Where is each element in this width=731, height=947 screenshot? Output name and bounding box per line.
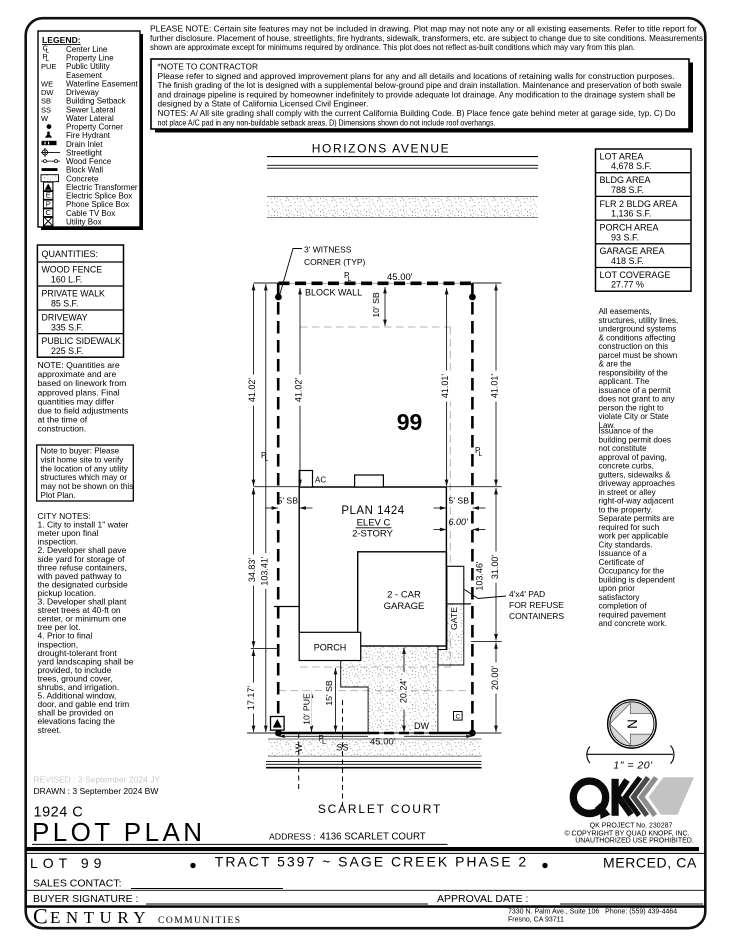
svg-text:ADDRESS :: ADDRESS : — [269, 832, 316, 842]
svg-text:AC: AC — [315, 476, 326, 485]
svg-text:41.02': 41.02' — [247, 378, 257, 403]
svg-text:QK PROJECT No. 230287: QK PROJECT No. 230287 — [590, 823, 673, 830]
svg-text:Issuance of the: Issuance of the — [599, 427, 654, 436]
svg-text:CORNER (TYP): CORNER (TYP) — [304, 257, 366, 267]
svg-text:FLR 2 BLDG AREA: FLR 2 BLDG AREA — [600, 199, 678, 209]
svg-text:PLOT PLAN: PLOT PLAN — [32, 817, 202, 847]
svg-text:BUYER SIGNATURE :: BUYER SIGNATURE : — [33, 893, 138, 905]
svg-text:construction on this: construction on this — [599, 342, 669, 351]
svg-text:4136 SCARLET COURT: 4136 SCARLET COURT — [320, 832, 426, 843]
svg-text:7330 N. Palm Ave., Suite 106: 7330 N. Palm Ave., Suite 106 Phone: (559… — [508, 909, 677, 916]
svg-text:99: 99 — [397, 409, 423, 435]
svg-text:31.00': 31.00' — [490, 555, 500, 580]
svg-text:Utility Box: Utility Box — [66, 217, 102, 226]
svg-text:gutters, sidewalks &: gutters, sidewalks & — [599, 470, 672, 479]
svg-text:6.00': 6.00' — [449, 517, 469, 527]
svg-text:C: C — [33, 904, 48, 929]
svg-text:E: E — [46, 191, 51, 200]
svg-text:may not be shown on this: may not be shown on this — [41, 482, 134, 491]
svg-text:SCARLET COURT: SCARLET COURT — [318, 802, 442, 816]
svg-text:REVISED : 3 September 2024 J: REVISED : 3 September 2024 JY — [34, 775, 161, 785]
svg-text:C: C — [455, 713, 460, 720]
svg-text:UNAUTHORIZED USE PROHIBITED.: UNAUTHORIZED USE PROHIBITED. — [575, 838, 694, 845]
svg-text:building is dependent: building is dependent — [599, 575, 676, 584]
svg-text:4'x4' PAD: 4'x4' PAD — [509, 589, 545, 599]
svg-text:34.83': 34.83' — [247, 558, 257, 583]
svg-text:160 L.F.: 160 L.F. — [51, 275, 82, 285]
svg-text:COMMUNITIES: COMMUNITIES — [158, 916, 242, 926]
svg-text:Electric Splice Box: Electric Splice Box — [66, 192, 132, 201]
svg-text:41.02': 41.02' — [294, 378, 304, 403]
svg-text:completion of: completion of — [599, 602, 648, 611]
svg-text:L: L — [348, 276, 352, 283]
svg-text:ENTURY: ENTURY — [50, 908, 151, 927]
svg-text:1,136 S.F.: 1,136 S.F. — [611, 209, 652, 219]
svg-text:and concrete work.: and concrete work. — [599, 619, 667, 628]
svg-text:5' SB: 5' SB — [449, 496, 470, 506]
svg-text:applicant. The: applicant. The — [599, 377, 650, 386]
svg-text:work per applicable: work per applicable — [598, 532, 669, 541]
svg-text:© COPYRIGHT BY QUAD KNOPF, INC: © COPYRIGHT BY QUAD KNOPF, INC. — [564, 829, 689, 837]
svg-text:BLDG AREA: BLDG AREA — [600, 175, 651, 185]
svg-text:Sewer Lateral: Sewer Lateral — [66, 105, 116, 114]
svg-text:Plot Plan.: Plot Plan. — [41, 491, 76, 500]
svg-text:ELEV C: ELEV C — [357, 518, 391, 529]
svg-text:GATE: GATE — [449, 607, 459, 630]
svg-text:10' PUE: 10' PUE — [301, 693, 311, 725]
svg-text:All easements,: All easements, — [599, 307, 652, 316]
svg-text:underground systems: underground systems — [599, 325, 677, 334]
svg-text:LOT 99: LOT 99 — [30, 855, 106, 871]
svg-text:10' SB: 10' SB — [371, 292, 381, 318]
svg-text:GARAGE: GARAGE — [384, 601, 425, 612]
svg-text:DRAWN : 3 September 2024 BW: DRAWN : 3 September 2024 BW — [34, 786, 159, 796]
svg-text:Fresno, CA 93711: Fresno, CA 93711 — [508, 917, 564, 924]
svg-text:335 S.F.: 335 S.F. — [51, 323, 83, 333]
svg-text:shown are approximate except f: shown are approximate except for minimum… — [150, 42, 635, 52]
svg-text:BLOCK WALL: BLOCK WALL — [305, 288, 362, 298]
svg-text:Issuance of a: Issuance of a — [599, 549, 648, 558]
svg-text:CONTAINERS: CONTAINERS — [509, 611, 564, 621]
svg-text:right-of-way adjacent: right-of-way adjacent — [599, 497, 675, 506]
svg-text:in street or alley: in street or alley — [599, 488, 657, 497]
svg-text:41.01': 41.01' — [490, 374, 500, 399]
svg-text:Certificate of: Certificate of — [599, 558, 645, 567]
svg-text:PLAN 1424: PLAN 1424 — [341, 505, 404, 517]
svg-text:required for such: required for such — [599, 523, 660, 532]
svg-text:41.01': 41.01' — [440, 374, 450, 399]
svg-text:structures which may or: structures which may or — [41, 473, 128, 482]
svg-text:15' SB: 15' SB — [324, 680, 334, 706]
svg-text:not constitute: not constitute — [599, 444, 648, 453]
svg-text:20.24': 20.24' — [399, 679, 409, 704]
svg-text:APPROVAL DATE :: APPROVAL DATE : — [437, 893, 528, 905]
svg-text:418 S.F.: 418 S.F. — [611, 256, 644, 266]
svg-text:85 S.F.: 85 S.F. — [51, 299, 78, 309]
svg-text:driveway approaches: driveway approaches — [599, 479, 675, 488]
svg-text:street.: street. — [38, 725, 62, 735]
svg-text:5' SB: 5' SB — [278, 496, 299, 506]
svg-text:WOOD FENCE: WOOD FENCE — [42, 265, 103, 275]
svg-text:visit home site to verify: visit home site to verify — [41, 455, 125, 464]
svg-text:27.77 %: 27.77 % — [611, 280, 644, 290]
svg-text:construction.: construction. — [38, 424, 87, 434]
svg-text:building permit does: building permit does — [599, 435, 671, 444]
svg-text:person the right to: person the right to — [599, 403, 665, 412]
svg-text:17.17': 17.17' — [246, 686, 256, 711]
svg-text:3' WITNESS: 3' WITNESS — [304, 245, 352, 255]
svg-text:LOT AREA: LOT AREA — [600, 151, 644, 161]
svg-text:225 S.F.: 225 S.F. — [51, 346, 83, 356]
svg-text:20.00': 20.00' — [490, 666, 500, 691]
svg-text:PUBLIC SIDEWALK: PUBLIC SIDEWALK — [42, 336, 121, 346]
svg-text:responsibility of the: responsibility of the — [599, 368, 669, 377]
svg-text:to the property.: to the property. — [599, 505, 653, 514]
svg-text:2-STORY: 2-STORY — [352, 529, 393, 540]
svg-text:PORCH: PORCH — [314, 643, 347, 653]
svg-text:issuance of a permit: issuance of a permit — [599, 386, 672, 395]
svg-text:& conditions affecting: & conditions affecting — [599, 333, 676, 342]
svg-text:Note to buyer: Please: Note to buyer: Please — [41, 447, 120, 456]
svg-text:103.46': 103.46' — [474, 561, 484, 591]
svg-text:parcel must be shown: parcel must be shown — [599, 351, 678, 360]
svg-text:93 S.F.: 93 S.F. — [611, 232, 639, 242]
svg-text:Public Utility: Public Utility — [66, 62, 110, 71]
svg-text:the location of any utility: the location of any utility — [41, 464, 129, 473]
svg-text:PRIVATE WALK: PRIVATE WALK — [42, 289, 106, 299]
svg-text:SALES CONTACT:: SALES CONTACT: — [33, 878, 122, 890]
svg-text:L: L — [479, 451, 483, 458]
svg-text:W: W — [41, 114, 49, 123]
svg-text:HORIZONS AVENUE: HORIZONS AVENUE — [312, 142, 450, 156]
svg-text:GARAGE AREA: GARAGE AREA — [600, 246, 665, 256]
svg-text:violate City or State: violate City or State — [599, 412, 670, 421]
svg-text:103.41': 103.41' — [260, 556, 270, 586]
svg-text:LOT COVERAGE: LOT COVERAGE — [600, 270, 671, 280]
svg-text:MERCED, CA: MERCED, CA — [603, 855, 697, 871]
svg-text:does not grant to any: does not grant to any — [599, 395, 676, 404]
svg-text:PORCH AREA: PORCH AREA — [600, 223, 659, 233]
svg-text:upon prior: upon prior — [599, 584, 636, 593]
svg-text:2 - CAR: 2 - CAR — [387, 590, 421, 601]
svg-text:City standards.: City standards. — [599, 540, 653, 549]
svg-text:approval of paving,: approval of paving, — [599, 453, 667, 462]
svg-text:TRACT 5397 ~ SAGE CREEK PHASE: TRACT 5397 ~ SAGE CREEK PHASE 2 — [215, 854, 528, 870]
svg-text:Separate permits are: Separate permits are — [599, 514, 675, 523]
svg-text:SS: SS — [41, 105, 51, 114]
svg-text:PUE: PUE — [41, 62, 56, 71]
svg-text:N: N — [625, 719, 640, 729]
svg-text:FOR REFUSE: FOR REFUSE — [509, 600, 564, 610]
svg-text:DW: DW — [414, 721, 429, 731]
svg-text:Streetlight: Streetlight — [66, 148, 103, 157]
svg-text:required pavement: required pavement — [599, 610, 667, 619]
svg-text:DRIVEWAY: DRIVEWAY — [42, 313, 88, 323]
svg-text:concrete curbs,: concrete curbs, — [599, 462, 654, 471]
svg-text:L: L — [265, 456, 269, 463]
svg-text:45.00': 45.00' — [387, 272, 413, 283]
svg-text:QUANTITIES:: QUANTITIES: — [42, 249, 99, 259]
svg-text:structures, utility lines,: structures, utility lines, — [599, 316, 679, 325]
svg-text:not place A/C pad in any non-b: not place A/C pad in any non-buildable s… — [158, 117, 496, 127]
svg-text:satisfactory: satisfactory — [599, 593, 641, 602]
svg-text:Occupancy for the: Occupancy for the — [599, 567, 665, 576]
svg-text:1" = 20': 1" = 20' — [613, 760, 653, 772]
svg-text:C: C — [45, 208, 51, 217]
svg-text:788 S.F.: 788 S.F. — [611, 185, 644, 195]
svg-text:4,678 S.F.: 4,678 S.F. — [611, 161, 652, 171]
svg-text:& are the: & are the — [599, 360, 632, 369]
